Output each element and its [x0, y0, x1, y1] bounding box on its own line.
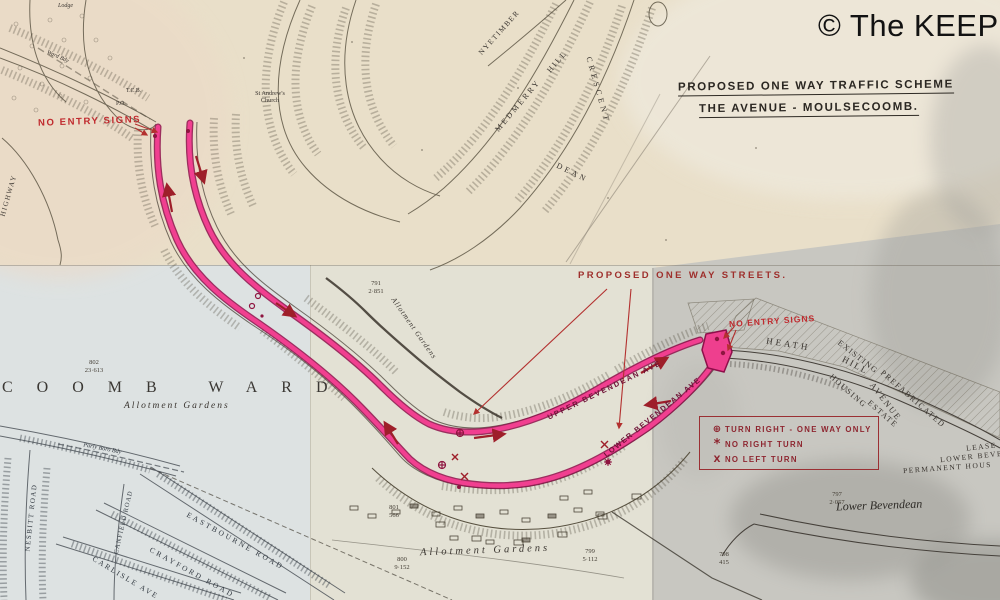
legend-box: ⊕ TURN RIGHT - ONE WAY ONLY * NO RIGHT T…	[699, 416, 879, 470]
parcel-802: 80223·613	[76, 359, 112, 375]
parcel-797: 7972·057	[819, 491, 855, 507]
label-st-andrews-church: St Andrew's Church	[248, 90, 292, 104]
proposed-one-way-streets-label: PROPOSED ONE WAY STREETS.	[578, 271, 787, 281]
label-lodge: Lodge	[58, 3, 73, 9]
map-title-line2: THE AVENUE - MOULSECOOMB.	[699, 98, 919, 116]
scanned-map: © The KEEP PROPOSED ONE WAY TRAFFIC SCHE…	[0, 0, 1000, 600]
parcel-800: 8009·152	[384, 556, 420, 572]
label-po: P.O.	[116, 102, 126, 108]
map-title-line1: PROPOSED ONE WAY TRAFFIC SCHEME	[678, 76, 954, 95]
label-tcb: T.C.B.	[126, 89, 141, 95]
legend-row-turn-right: ⊕ TURN RIGHT - ONE WAY ONLY	[709, 422, 878, 437]
parcel-799: 7995·112	[572, 548, 608, 564]
parcel-801: 801566	[376, 504, 412, 520]
no-left-turn-symbol: X	[709, 455, 725, 465]
label-allotment-gardens-ward: Allotment Gardens	[124, 402, 230, 412]
keep-watermark: © The KEEP	[818, 10, 999, 41]
parcel-791: 7912·851	[358, 280, 394, 296]
legend-row-no-right-turn: * NO RIGHT TURN	[709, 437, 878, 452]
parcel-798: 798415	[706, 551, 742, 567]
turn-right-symbol: ⊕	[709, 424, 725, 435]
no-right-turn-symbol: *	[709, 437, 725, 452]
legend-row-no-left-turn: X NO LEFT TURN	[709, 452, 878, 467]
no-right-turn-symbols	[604, 458, 612, 466]
label-coomb-ward: COOMB WARD	[2, 380, 352, 396]
